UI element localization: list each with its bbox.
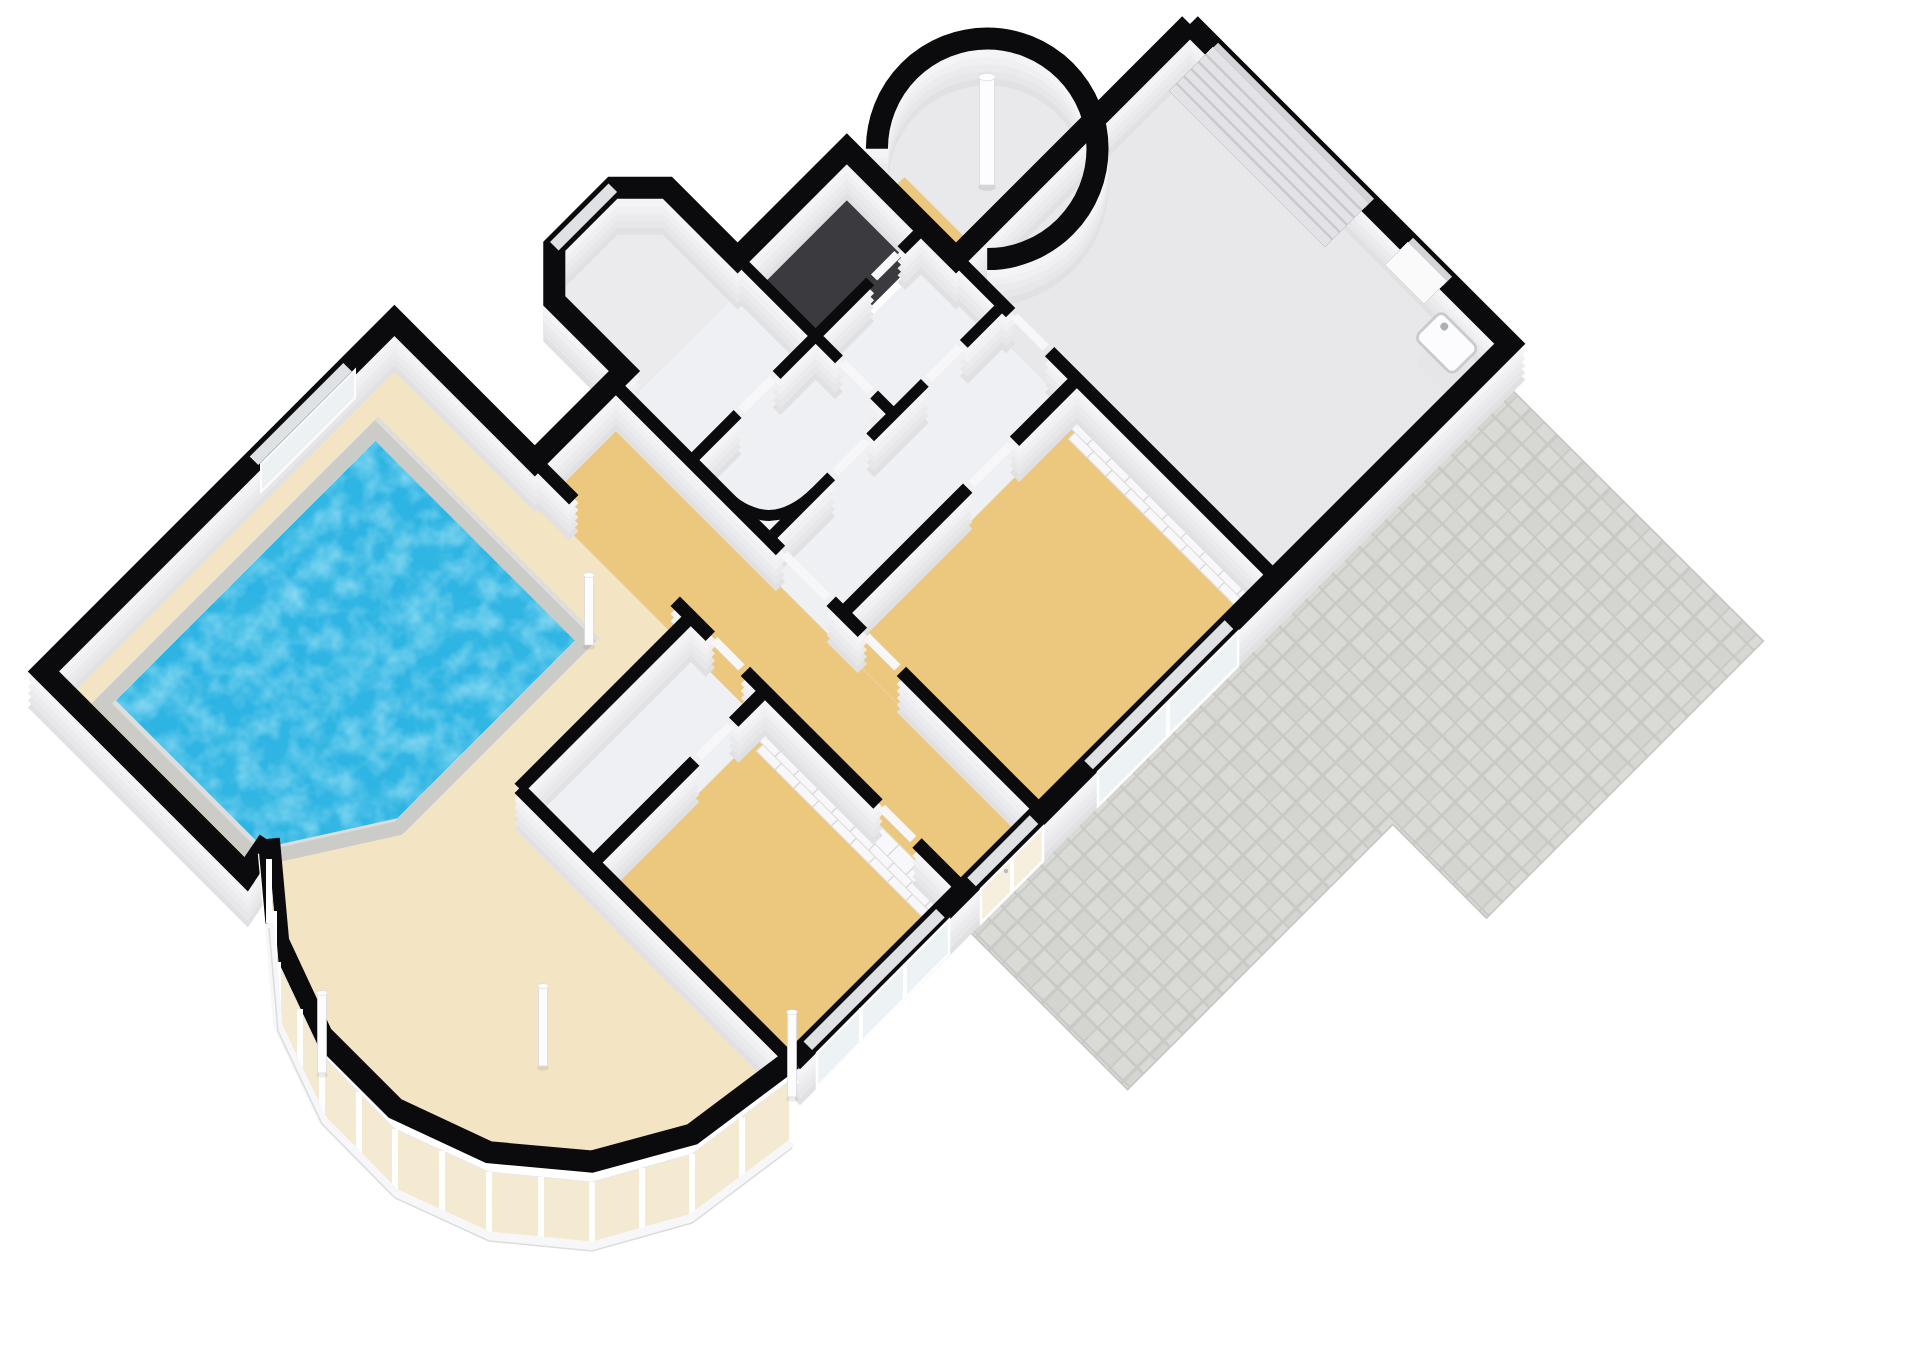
pool-hall-column (583, 573, 595, 650)
pool-hall-column (537, 984, 549, 1071)
floorplan-stage (0, 0, 1920, 1358)
deck-column (316, 991, 328, 1078)
floorplan-3d-canvas[interactable] (0, 0, 1920, 1358)
turret-column (978, 73, 996, 191)
deck-column (786, 1010, 798, 1102)
